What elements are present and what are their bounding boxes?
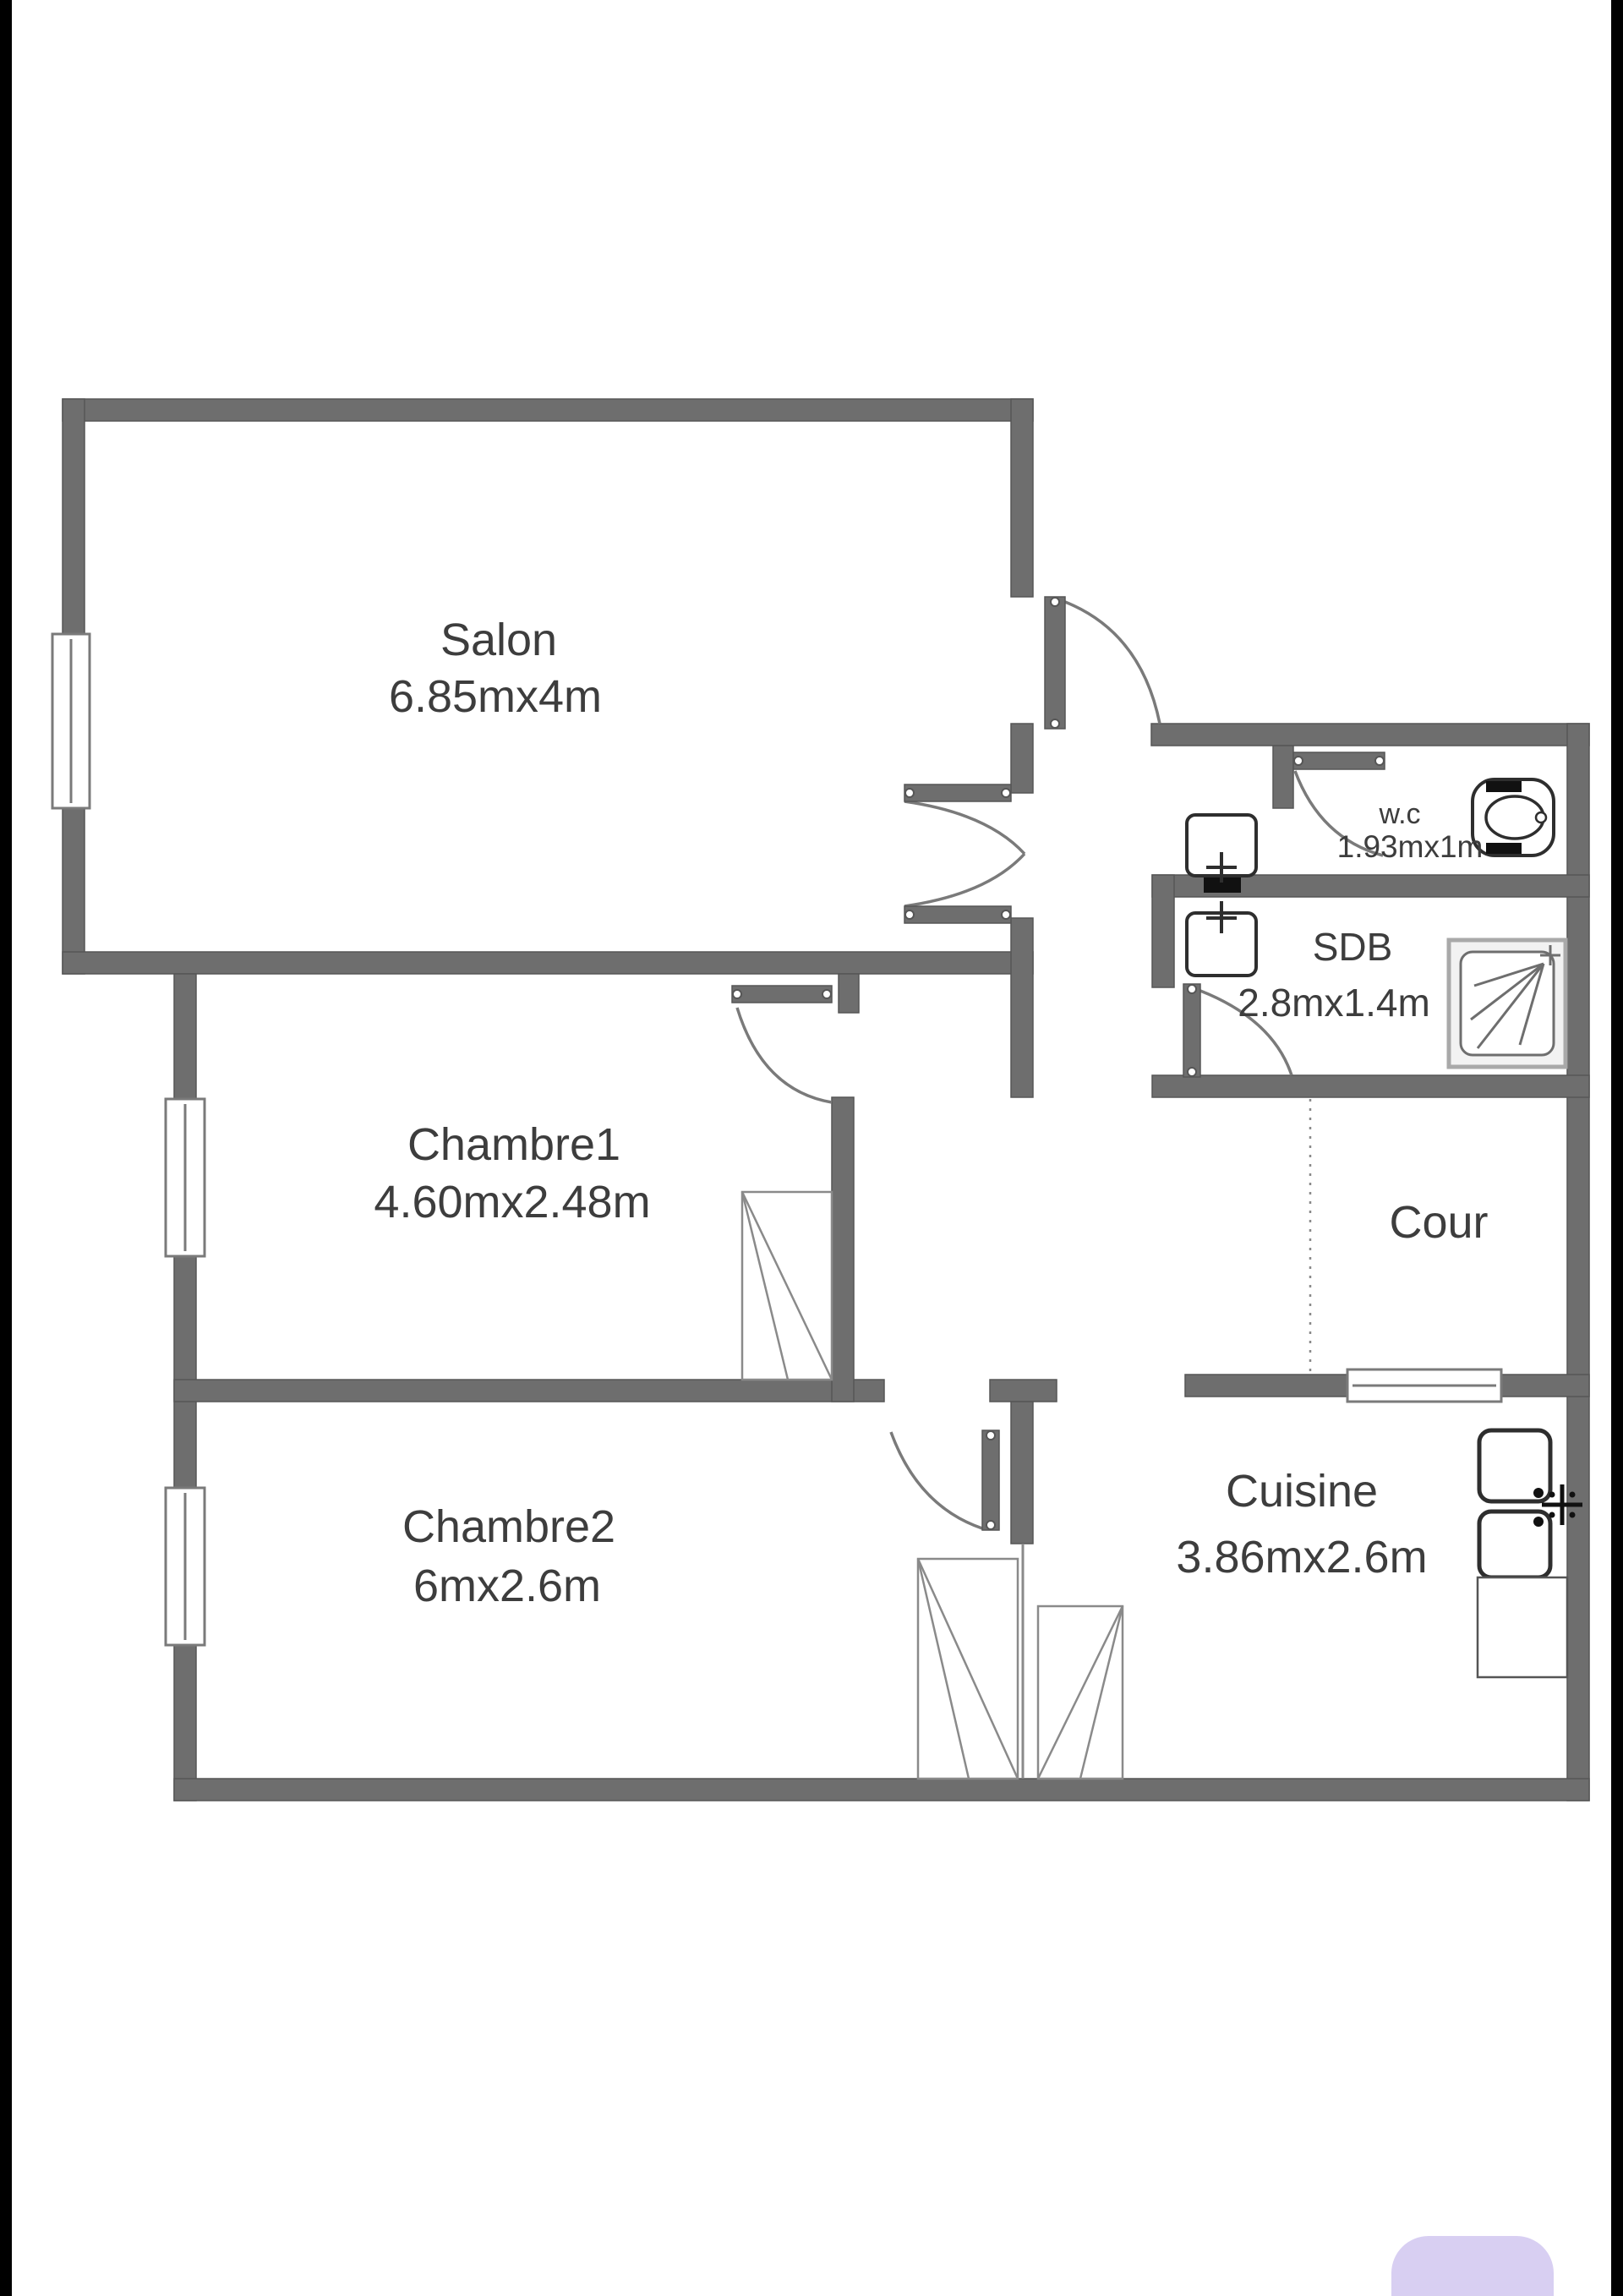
- shower-icon: [1449, 940, 1566, 1067]
- toilet-icon: [1473, 779, 1554, 856]
- room-label-chambre1: Chambre1: [407, 1119, 620, 1170]
- room-dimensions-chambre1: 4.60mx2.48m: [374, 1177, 650, 1227]
- wardrobe-icon: [742, 1192, 832, 1380]
- washbasin-icon: [1187, 901, 1256, 976]
- screenshot-root: Salon 6.85mx4m Chambre1 4.60mx2.48m Cham…: [0, 0, 1623, 2296]
- entry-door-leaf: [1045, 597, 1065, 729]
- salon-double-door-arc: [904, 854, 1025, 906]
- room-label-sdb: SDB: [1313, 925, 1393, 969]
- wc-door-leaf: [1293, 752, 1385, 769]
- room-dimensions-salon: 6.85mx4m: [389, 671, 602, 722]
- screen-edge-bar-right: [1611, 0, 1623, 2296]
- window-cour-bottom: [1347, 1369, 1501, 1402]
- chambre2-door-arc: [891, 1432, 982, 1528]
- salon-double-door-leaf: [904, 906, 1011, 923]
- room-label-wc: w.c: [1378, 798, 1420, 830]
- floating-action-button[interactable]: [1391, 2236, 1554, 2296]
- chambre1-door-leaf: [732, 986, 832, 1003]
- room-label-cour: Cour: [1389, 1197, 1488, 1248]
- entry-door-arc: [1065, 602, 1160, 724]
- room-dimensions-sdb: 2.8mx1.4m: [1238, 981, 1430, 1025]
- room-dimensions-chambre2: 6mx2.6m: [413, 1561, 601, 1611]
- wardrobe-icon: [1038, 1606, 1123, 1779]
- window-chambre2-left: [166, 1488, 205, 1645]
- salon-double-door-arc: [904, 801, 1025, 854]
- counter-icon: [1478, 1577, 1567, 1677]
- room-label-chambre2: Chambre2: [402, 1501, 615, 1552]
- wardrobe-icon: [918, 1559, 1018, 1779]
- room-label-salon: Salon: [440, 615, 557, 665]
- room-label-cuisine: Cuisine: [1226, 1466, 1378, 1517]
- screen-edge-bar-left: [0, 0, 12, 2296]
- window-chambre1-left: [166, 1099, 205, 1256]
- sdb-door-leaf: [1183, 984, 1200, 1077]
- room-dimensions-wc: 1.93mx1m: [1337, 829, 1484, 864]
- floor-plan-svg: Salon 6.85mx4m Chambre1 4.60mx2.48m Cham…: [0, 0, 1623, 2296]
- chambre2-door-leaf: [982, 1430, 999, 1530]
- room-dimensions-cuisine: 3.86mx2.6m: [1176, 1532, 1427, 1583]
- chambre1-door-arc: [737, 1008, 832, 1102]
- window-salon-left: [52, 634, 90, 808]
- salon-double-door-leaf: [904, 784, 1011, 801]
